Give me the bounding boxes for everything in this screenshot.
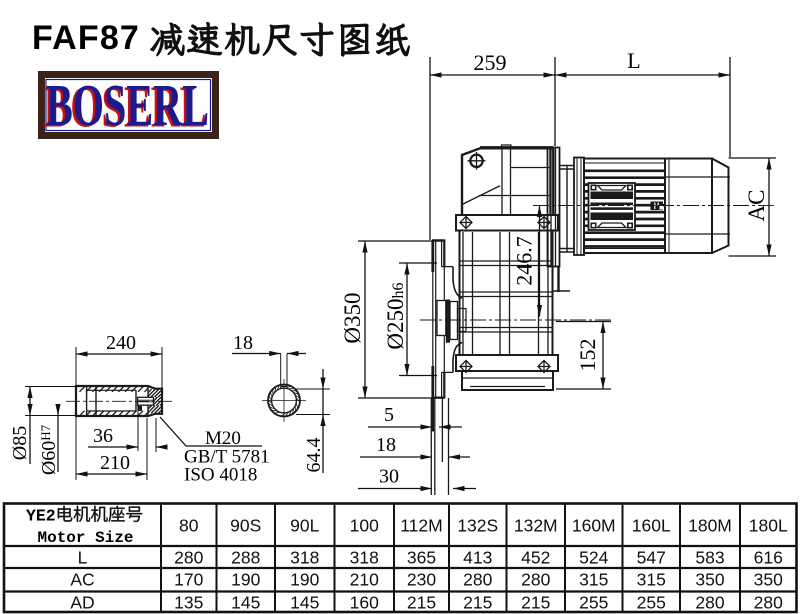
svg-text:318: 318 bbox=[290, 548, 319, 568]
svg-text:170: 170 bbox=[174, 570, 203, 590]
svg-text:583: 583 bbox=[695, 548, 724, 568]
svg-text:Motor Size: Motor Size bbox=[38, 529, 134, 547]
svg-text:365: 365 bbox=[407, 548, 436, 568]
svg-text:132S: 132S bbox=[457, 516, 498, 536]
svg-text:ISO 4018: ISO 4018 bbox=[184, 465, 257, 486]
svg-text:318: 318 bbox=[350, 548, 379, 568]
svg-text:Ø350: Ø350 bbox=[340, 292, 365, 343]
svg-text:36: 36 bbox=[93, 425, 113, 447]
svg-text:288: 288 bbox=[231, 548, 260, 568]
svg-text:18: 18 bbox=[233, 332, 253, 354]
svg-text:255: 255 bbox=[637, 593, 666, 613]
svg-text:Ø85: Ø85 bbox=[9, 426, 31, 460]
svg-text:246.7: 246.7 bbox=[512, 236, 537, 286]
svg-text:524: 524 bbox=[579, 548, 608, 568]
svg-text:452: 452 bbox=[521, 548, 550, 568]
svg-text:90L: 90L bbox=[290, 516, 319, 536]
svg-text:160L: 160L bbox=[632, 516, 671, 536]
svg-text:215: 215 bbox=[463, 593, 492, 613]
svg-text:547: 547 bbox=[637, 548, 666, 568]
svg-text:210: 210 bbox=[100, 452, 130, 474]
svg-text:160: 160 bbox=[350, 593, 379, 613]
svg-text:280: 280 bbox=[463, 570, 492, 590]
svg-text:259: 259 bbox=[474, 50, 507, 75]
svg-text:280: 280 bbox=[521, 570, 550, 590]
svg-text:413: 413 bbox=[463, 548, 492, 568]
svg-text:152: 152 bbox=[575, 339, 600, 372]
svg-text:280: 280 bbox=[695, 593, 724, 613]
svg-text:230: 230 bbox=[407, 570, 436, 590]
svg-text:350: 350 bbox=[695, 570, 724, 590]
svg-text:FAF87: FAF87 bbox=[32, 19, 140, 57]
svg-text:215: 215 bbox=[407, 593, 436, 613]
svg-text:190: 190 bbox=[231, 570, 260, 590]
svg-text:240: 240 bbox=[106, 332, 136, 354]
svg-text:350: 350 bbox=[754, 570, 783, 590]
svg-text:YE2: YE2 bbox=[26, 507, 56, 526]
svg-text:160M: 160M bbox=[572, 516, 616, 536]
svg-text:64.4: 64.4 bbox=[303, 438, 325, 473]
svg-text:145: 145 bbox=[290, 593, 319, 613]
svg-text:210: 210 bbox=[350, 570, 379, 590]
svg-text:AD: AD bbox=[70, 593, 94, 613]
svg-text:18: 18 bbox=[376, 434, 396, 456]
svg-text:280: 280 bbox=[174, 548, 203, 568]
svg-text:215: 215 bbox=[521, 593, 550, 613]
svg-text:L: L bbox=[627, 48, 640, 73]
svg-text:132M: 132M bbox=[514, 516, 558, 536]
svg-text:280: 280 bbox=[754, 593, 783, 613]
svg-text:BOSERL: BOSERL bbox=[46, 72, 209, 138]
svg-text:80: 80 bbox=[179, 516, 199, 536]
svg-text:180L: 180L bbox=[749, 516, 788, 536]
svg-text:AC: AC bbox=[744, 190, 769, 222]
svg-text:135: 135 bbox=[174, 593, 203, 613]
svg-text:315: 315 bbox=[637, 570, 666, 590]
svg-text:30: 30 bbox=[379, 466, 399, 488]
svg-text:616: 616 bbox=[754, 548, 783, 568]
svg-text:112M: 112M bbox=[400, 516, 442, 536]
svg-text:190: 190 bbox=[290, 570, 319, 590]
svg-text:315: 315 bbox=[579, 570, 608, 590]
svg-text:90S: 90S bbox=[230, 516, 261, 536]
svg-text:255: 255 bbox=[579, 593, 608, 613]
svg-text:5: 5 bbox=[384, 404, 394, 426]
svg-text:100: 100 bbox=[350, 516, 379, 536]
svg-text:AC: AC bbox=[70, 570, 94, 590]
svg-text:L: L bbox=[78, 548, 88, 568]
svg-text:145: 145 bbox=[231, 593, 260, 613]
svg-text:180M: 180M bbox=[688, 516, 732, 536]
